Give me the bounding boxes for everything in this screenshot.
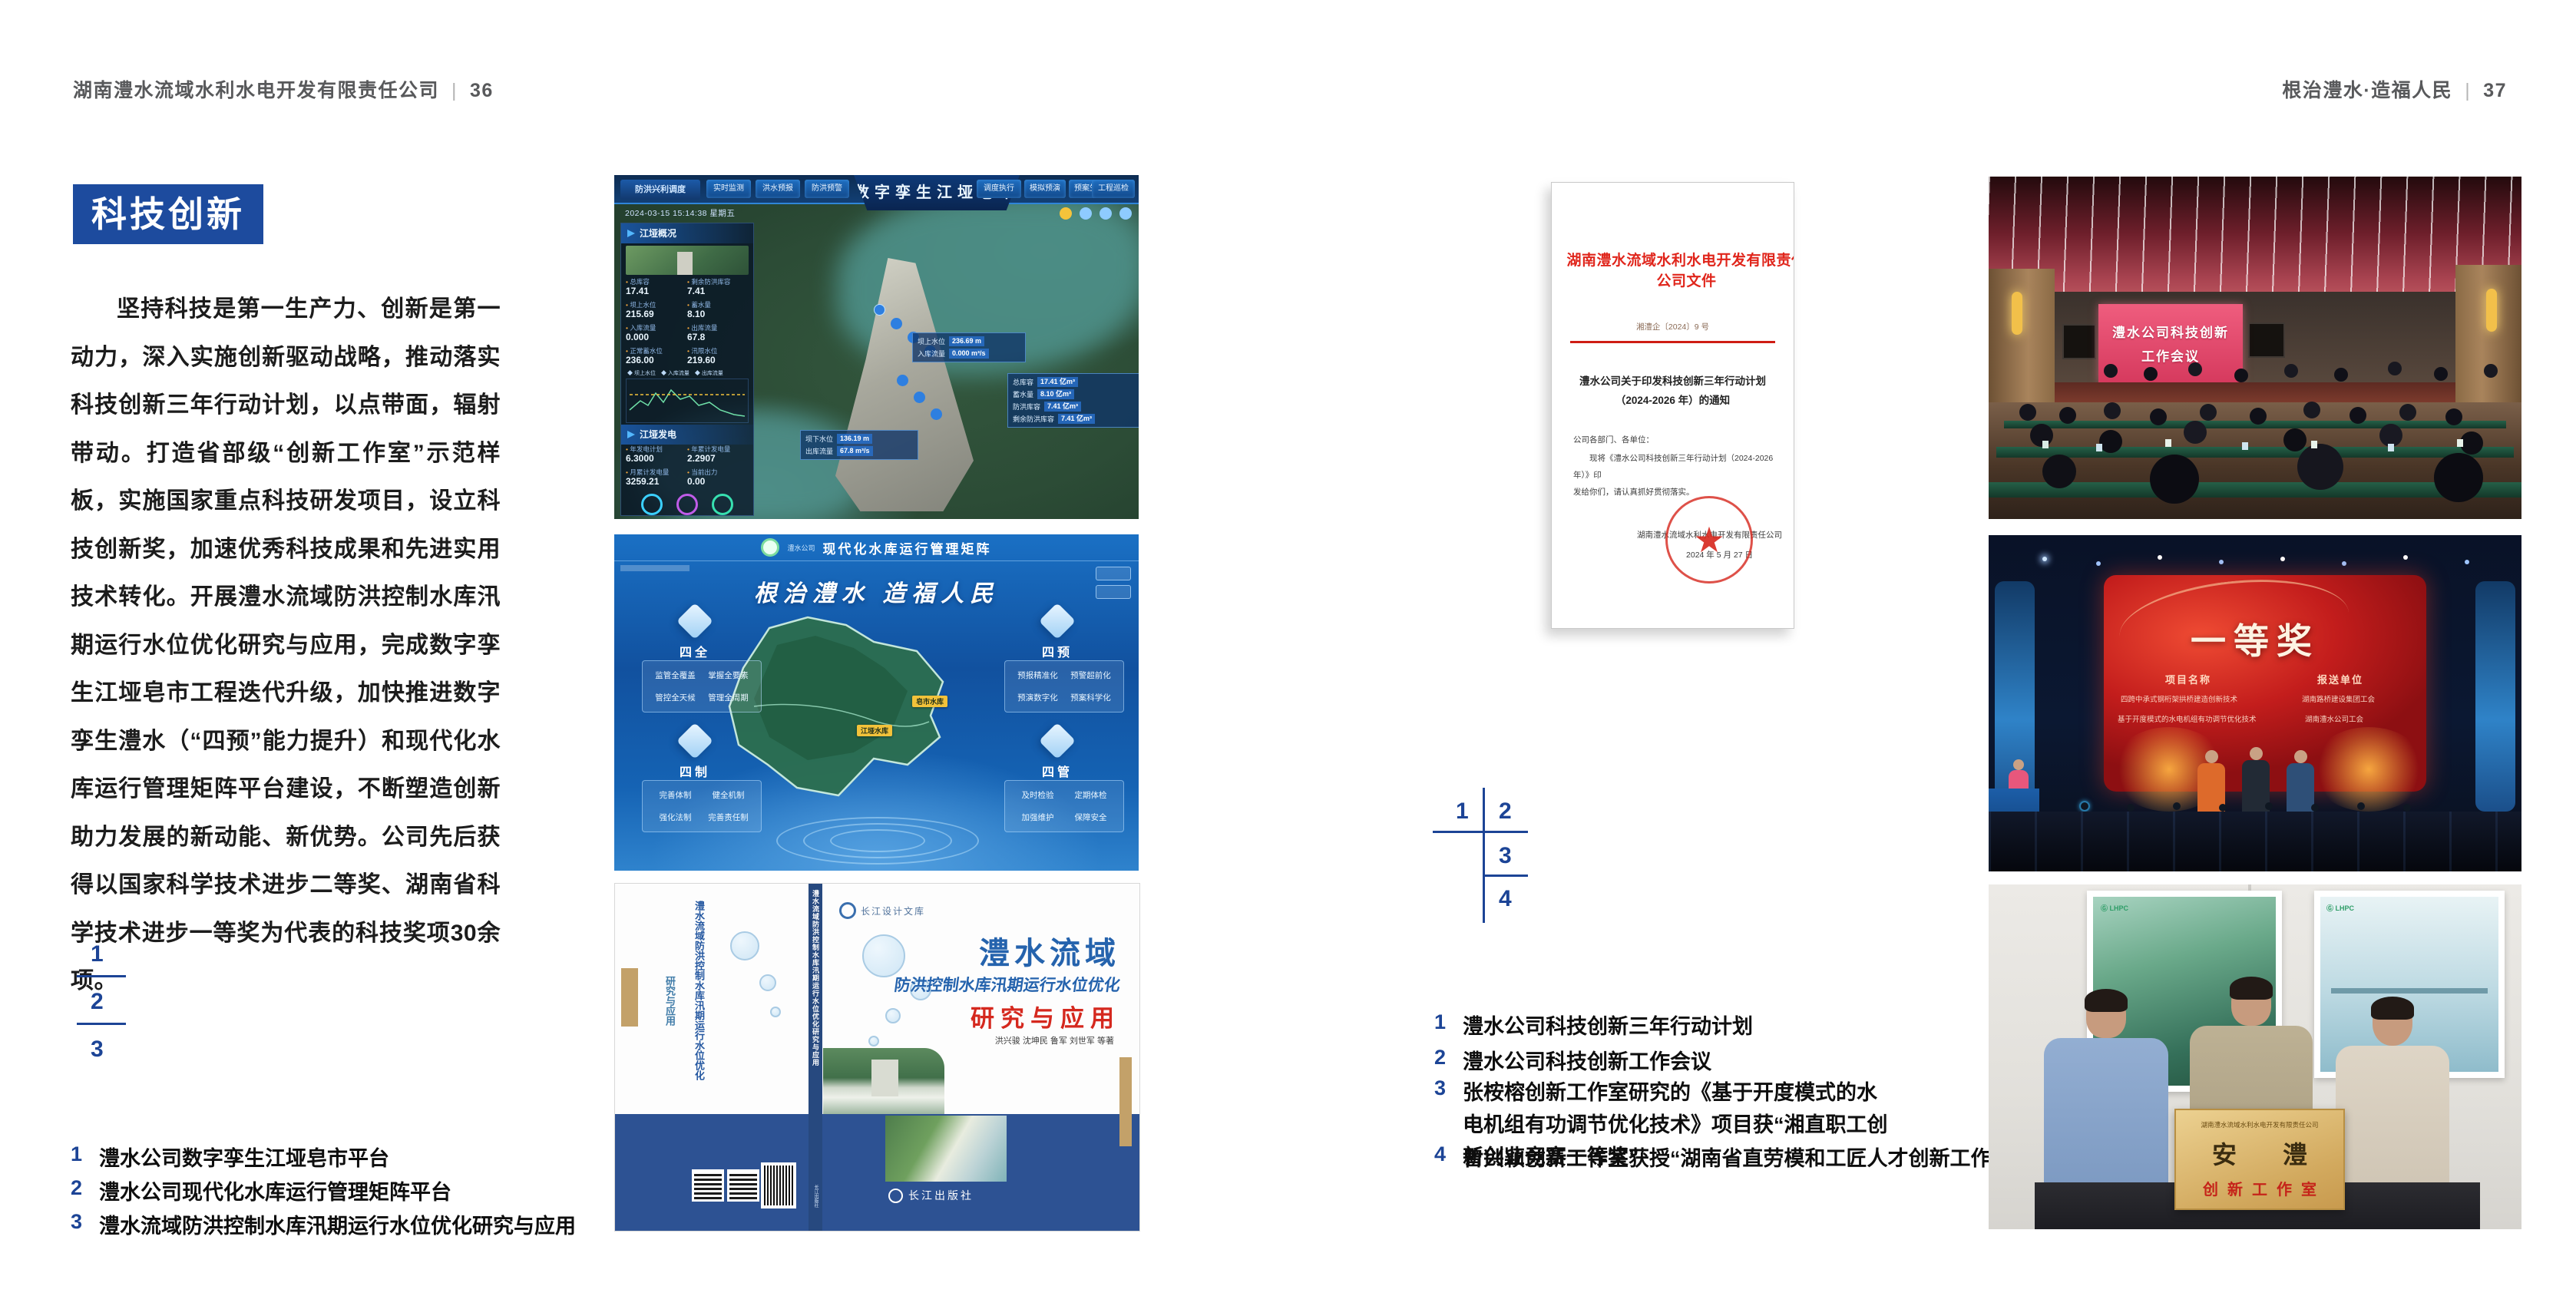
tab-simulation: 模拟预演 [1024,180,1066,198]
panel-title-overview: 江垭概况 [621,223,753,243]
right-wall [2455,265,2521,407]
figure-number-2: 2 [1499,798,1512,825]
figure-number-1: 1 [91,941,104,967]
authors: 洪兴骏 沈坤民 鲁军 刘世军 等著 [830,1034,1114,1046]
brand-row: 长江设计文库 [839,902,925,919]
desk-row [2004,421,2506,428]
award-unit-1: 湖南路桥建设集团工会 [2302,693,2375,704]
quadrant-name: 四制 [660,762,729,780]
caption-text: 澧水流域防洪控制水库汛期运行水位优化研究与应用 [99,1210,576,1242]
company-name: 湖南澧水流域水利水电开发有限责任公司 [73,80,439,101]
dam-photo-1 [823,1048,944,1114]
panel-speakers [2104,364,2118,378]
header-divider: | [451,80,458,101]
unit-gauge-2 [676,494,698,515]
award-project-1: 四跨中承式钢桁架拱桥建造创新技术 [2121,693,2305,704]
matrix-title: 现代化水库运行管理矩阵 [823,538,992,557]
front-tan-block [1119,1057,1132,1146]
map-label-zaoshi: 皂市水库 [912,696,947,707]
document-title: 湖南澧水流域水利水电开发有限责任公司文件 [1552,249,1794,290]
lhpc-logo-icon [761,538,779,557]
caption-number: 2 [1434,1046,1446,1070]
caption-number: 3 [1434,1076,1446,1100]
unit-gauge-3 [712,494,733,515]
figure-number-3: 3 [91,1037,104,1063]
front-title-line2: 防洪控制水库汛期运行水位优化 [828,973,1122,996]
body-paragraph: 坚持科技是第一生产力、创新是第一动力，深入实施创新驱动战略，推动落实科技创新三年… [71,286,501,1006]
stat-grid: 总库容17.41 剩余防洪库容7.41 坝上水位215.69 蓄水量8.10 入… [621,277,753,369]
projection-screen: 澧水公司科技创新 工作会议 [2098,304,2243,382]
stat-cell: 总库容17.41 [626,277,687,300]
stage-lights [2042,557,2047,561]
matrix-titlebar: 澧水公司 现代化水库运行管理矩阵 [614,534,1139,561]
stat-cell: 入库流量0.000 [626,323,687,346]
award-col-project: 项目名称 [2165,672,2211,686]
caption-row: 3 澧水流域防洪控制水库汛期运行水位优化研究与应用 [71,1210,576,1242]
callout-downstream: 坝下水位136.19 m 出库流量67.8 m³/s [800,430,918,460]
caption-row: 1 澧水公司科技创新三年行动计划 [1434,1010,1753,1043]
right-page-header: 根治澧水·造福人民|37 [2282,75,2507,103]
figure-digital-twin-platform: 防洪兴利调度 实时监测 洪水预报 防洪预警 数字孪生江垭皂市 模拟预演 预案生成… [614,175,1139,519]
caption-number: 1 [71,1142,82,1166]
callout-storage: 总库容17.41 亿m³ 蓄水量8.10 亿m³ 防洪库容7.41 亿m³ 剩余… [1007,373,1139,428]
bubble-decoration [759,974,776,991]
caption-row: 4 曾兴颖创新工作室获授“湖南省直劳模和工匠人才创新工作室” [1434,1142,2022,1175]
floor-light-fixtures [2081,802,2088,810]
figure-number-1: 1 [1456,798,1469,825]
screen-line2: 工作会议 [2141,346,2200,365]
document-salutation: 公司各部门、各单位： [1573,431,1654,448]
quadrant-name: 四预 [1023,642,1092,660]
tab-flood-forecast: 洪水预报 [756,180,800,198]
person-head [2086,994,2126,1038]
stat-cell: 月累计发电量3259.21 [626,468,687,491]
audience-row [2030,424,2053,447]
bubble-decoration [770,1007,781,1017]
person-shirt-blue [2044,1038,2168,1189]
left-wall [1989,269,2055,407]
tv-screen [2062,324,2096,359]
wall-lamp [2486,289,2497,332]
panel-title-power: 江垭发电 [621,425,753,445]
qr-code [692,1169,724,1202]
stat-cell: 年发电计划6.3000 [626,445,687,468]
stat-cell: 出库流量67.8 [687,323,749,346]
quadrant-icon [676,603,713,640]
figure-matrix-platform: 澧水公司 现代化水库运行管理矩阵 根治澧水 造福人民 皂市水库 江垭水库 四全 … [614,534,1139,871]
quadrant-icon [1039,603,1076,640]
book-spine: 澧水流域防洪控制水库汛期运行水位优化研究与应用 长江出版社 [809,884,822,1231]
caption-text: 澧水公司科技创新工作会议 [1463,1046,1711,1078]
figure-number-2: 2 [91,989,104,1015]
desk-papers [2042,441,2049,448]
plaque-org: 湖南澧水流域水利水电开发有限责任公司 [2201,1120,2318,1129]
publisher-name: 长江出版社 [908,1188,974,1203]
person-right [2336,1001,2449,1192]
quadrant-icon [1039,722,1076,759]
figure-number-3: 3 [1499,843,1512,869]
map-label-jiangya: 江垭水库 [857,725,892,736]
caption-number: 1 [1434,1010,1446,1034]
stat-cell: 汛限水位219.60 [687,346,749,369]
dam-photo-2 [885,1116,1007,1182]
qr-code [727,1169,759,1202]
tab-flood-warning: 防洪预警 [805,180,849,198]
left-page-number: 36 [470,80,494,101]
person-shirt-beige [2336,1046,2449,1192]
toolbar-icons [1060,207,1072,220]
chart-legend: ◆ 坝上水位 ◆ 入库流量 ◆ 出库流量 [621,369,753,377]
seal-star-icon: ★ [1693,519,1724,560]
wall-lamp [2012,292,2022,335]
back-cover-subtitle-vertical: 研究与应用 [663,976,677,1068]
quadrant-panel: 完善体制健全机制 强化法制完善责任制 [642,780,762,832]
caption-text: 澧水公司科技创新三年行动计划 [1463,1010,1753,1043]
stat-cell: 正常蓄水位236.00 [626,346,687,369]
figure-meeting-photo: 澧水公司科技创新 工作会议 [1989,177,2521,519]
matrix-timestamp-strip [620,565,689,571]
tab-realtime-monitor: 实时监测 [706,180,751,198]
award-project-2: 基于开度模式的水电机组有功调节优化技术 [2118,713,2305,724]
caption-text: 澧水公司数字孪生江垭皂市平台 [99,1142,389,1175]
figure-number-divider [77,1023,126,1025]
tv-screen [2248,322,2285,358]
quadrant-name: 四管 [1023,762,1092,780]
ripple-ring [830,829,925,852]
figure-plaque-photo: Ⓖ LHPC Ⓖ LHPC 湖南澧水流域水利水电开发有限责任公司 安 澧 创新工… [1989,884,2521,1229]
caption-number: 2 [71,1176,82,1200]
unit-gauge-1 [641,494,663,515]
plaque-name: 安 澧 [2192,1136,2327,1171]
audience-row [2019,404,2036,421]
figure-book-cover: 澧水流域防洪控制水库汛期运行水位优化 研究与应用 澧水流域防洪控制水库汛期运行水… [614,883,1140,1232]
power-stat-grid: 年发电计划6.3000 年累计发电量2.2907 月累计发电量3259.21 当… [621,445,753,491]
timestamp: 2024-03-15 15:14:38 星期五 [625,207,735,219]
isbn-barcode [761,1162,796,1208]
quadrant-name: 四全 [660,642,729,660]
caption-text: 曾兴颖创新工作室获授“湖南省直劳模和工匠人才创新工作室” [1463,1142,2022,1175]
person-head [2294,750,2307,763]
figure-award-photo: 一等奖 项目名称 报送单位 四跨中承式钢桁架拱桥建造创新技术 湖南路桥建设集团工… [1989,535,2521,871]
stat-cell: 当前出力0.00 [687,468,749,491]
stage-floor [1989,812,2521,871]
gate-markers [874,304,885,316]
quadrant-icon [676,722,713,759]
official-seal: ★ [1665,496,1753,584]
caption-row: 1 澧水公司数字孪生江垭皂市平台 [71,1142,389,1175]
figure-number-vline [1483,788,1485,923]
left-page-header: 湖南澧水流域水利水电开发有限责任公司|36 [73,75,494,103]
front-title-line1: 澧水流域 [830,928,1120,973]
figure-official-document: 湖南澧水流域水利水电开发有限责任公司文件 湘澧企〔2024〕9 号 澧水公司关于… [1551,182,1794,629]
right-page-number: 37 [2483,80,2507,101]
brand-text: 长江设计文库 [861,904,925,918]
slogan: 根治澧水 造福人民 [614,574,1139,608]
lhpc-logo-icon: Ⓖ LHPC [2326,903,2354,913]
chart-svg [627,379,748,421]
stat-cell: 年累计发电量2.2907 [687,445,749,468]
header-divider: | [2465,80,2471,101]
quadrant-panel: 预报精准化预警超前化 预演数字化预案科学化 [1004,660,1124,713]
page-motto: 根治澧水·造福人民 [2282,80,2452,101]
callout-upstream: 坝上水位236.69 m 入库流量0.000 m³/s [912,332,1026,362]
tab-project-inspection: 工程巡检 [1092,180,1135,198]
figure-number-divider [1433,831,1528,833]
section-title-badge: 科技创新 [73,184,263,244]
caption-text: 澧水公司现代化水库运行管理矩阵平台 [99,1176,451,1208]
unit-gauges [621,491,753,515]
document-subject: 澧水公司关于印发科技创新三年行动计划 （2024-2026 年）的通知 [1552,372,1794,410]
person-head [2205,750,2218,763]
caption-row: 2 澧水公司科技创新工作会议 [1434,1046,1711,1078]
press-logo-icon [839,902,856,919]
screen-glow [2311,727,2426,812]
stat-cell: 剩余防洪库容7.41 [687,277,749,300]
dam-thumbnail [626,246,749,275]
dais-table [2055,382,2455,402]
back-tan-block [621,968,638,1027]
caption-number: 3 [71,1210,82,1234]
back-cover-title-vertical: 澧水流域防洪控制水库汛期运行水位优化 [692,901,706,1093]
front-title-line3: 研究与应用 [830,999,1120,1033]
bubble-decoration [730,931,759,960]
water-level-chart [626,379,749,423]
module-label: 防洪兴利调度 [620,180,700,200]
person-head [2013,759,2024,770]
ceiling [1989,177,2521,304]
person-head [2373,1001,2412,1046]
audience-row [2042,455,2076,488]
studio-plaque: 湖南澧水流域水利水电开发有限责任公司 安 澧 创新工作室 [2174,1109,2345,1210]
logo-text: 澧水公司 [787,543,815,553]
desk-row [1996,447,2514,458]
publisher-row: 长江出版社 [888,1188,974,1203]
caption-number: 4 [1434,1142,1446,1166]
figure-number-divider [77,975,126,977]
screen-line1: 澧水公司科技创新 [2112,322,2229,341]
quadrant-panel: 及时检验定期体检 加强维护保障安全 [1004,780,1124,832]
award-title: 一等奖 [1989,613,2521,664]
document-body: 现将《澧水公司科技创新三年行动计划（2024-2026 年）》印 发给你们，请认… [1573,450,1774,501]
person-left [2044,994,2168,1189]
person-head [2231,981,2271,1026]
plaque-subtitle: 创新工作室 [2194,1177,2326,1199]
overview-panel: 江垭概况 总库容17.41 剩余防洪库容7.41 坝上水位215.69 蓄水量8… [620,223,754,516]
document-number: 湘澧企〔2024〕9 号 [1552,321,1794,332]
spine-publisher: 长江出版社 [812,1185,819,1226]
figure-number-4: 4 [1499,886,1512,912]
tab-dispatch-execute: 调度执行 [977,180,1021,198]
publisher-logo-icon [888,1189,903,1203]
stat-cell: 蓄水量8.10 [687,300,749,323]
document-red-rule [1570,341,1775,343]
figure-number-divider [1483,875,1528,877]
award-col-unit: 报送单位 [2317,672,2363,686]
quadrant-panel: 监管全覆盖掌握全要素 管控全天候管理全周期 [642,660,762,713]
caption-row: 2 澧水公司现代化水库运行管理矩阵平台 [71,1176,451,1208]
award-unit-2: 湖南澧水公司工会 [2305,713,2363,724]
person-head [2250,747,2263,760]
spine-title: 澧水流域防洪控制水库汛期运行水位优化研究与应用 [811,890,821,1120]
lhpc-logo-icon: Ⓖ LHPC [2101,903,2128,913]
stat-cell: 坝上水位215.69 [626,300,687,323]
